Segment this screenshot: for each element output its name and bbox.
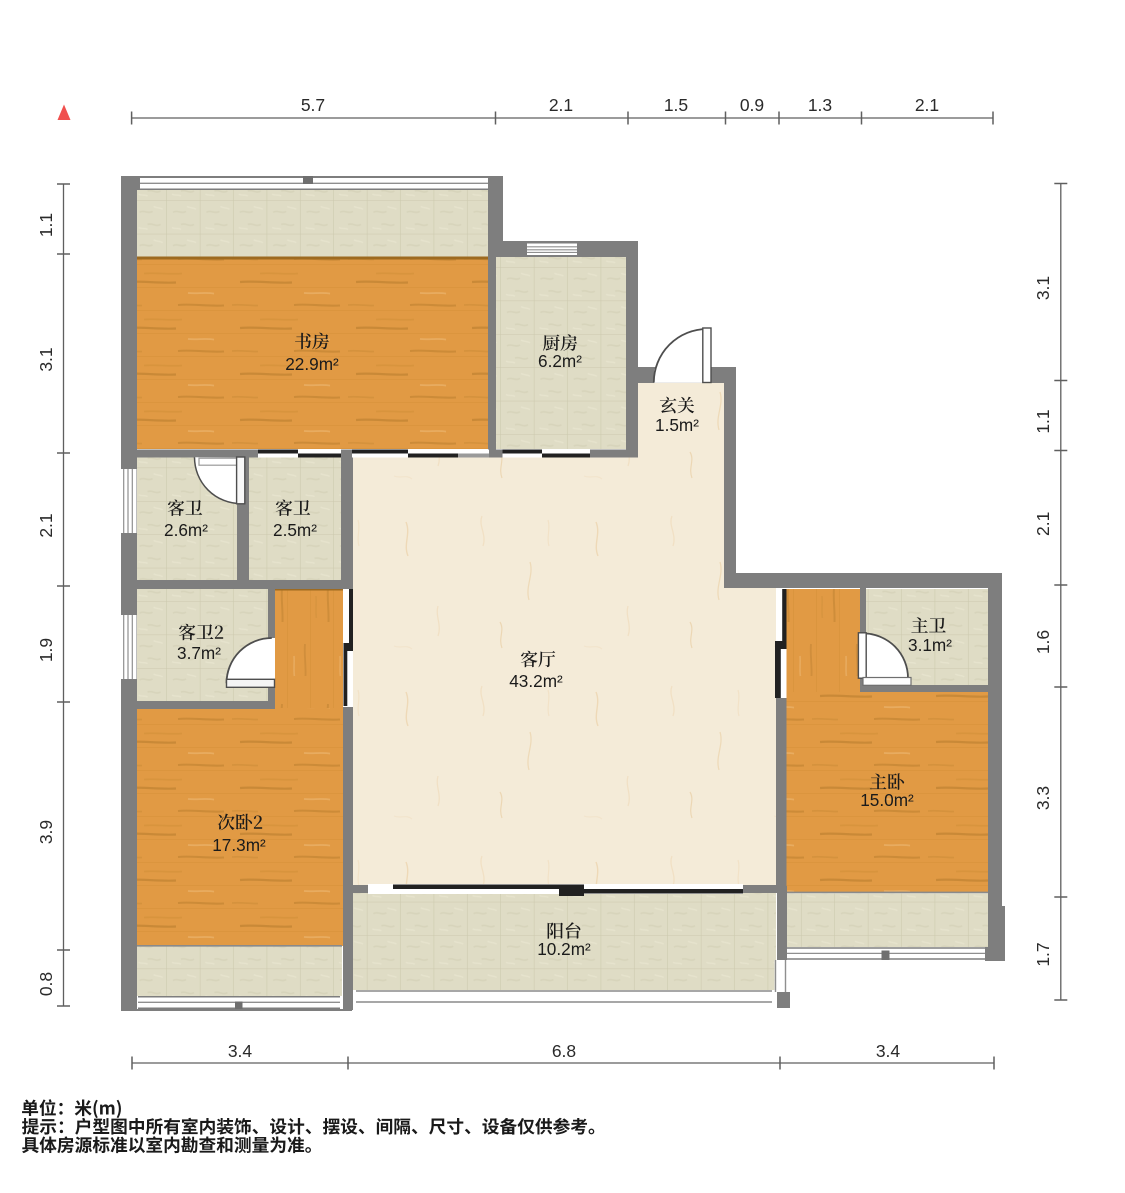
svg-text:43.2m²: 43.2m² [509, 671, 563, 691]
svg-text:1.9: 1.9 [36, 638, 56, 662]
svg-text:2.5m²: 2.5m² [273, 520, 317, 540]
svg-text:1.3: 1.3 [808, 95, 832, 115]
svg-text:6.2m²: 6.2m² [538, 351, 582, 371]
svg-text:1.7: 1.7 [1033, 942, 1053, 966]
svg-text:0.9: 0.9 [740, 95, 764, 115]
svg-text:3.4: 3.4 [876, 1041, 901, 1061]
svg-text:1.5: 1.5 [664, 95, 688, 115]
svg-text:3.9: 3.9 [36, 820, 56, 844]
svg-text:3.3: 3.3 [1033, 786, 1053, 810]
svg-text:2.1: 2.1 [1033, 512, 1053, 536]
svg-text:3.1m²: 3.1m² [908, 635, 952, 655]
svg-text:3.7m²: 3.7m² [177, 643, 221, 663]
svg-text:2.1: 2.1 [915, 95, 939, 115]
svg-text:2.1: 2.1 [549, 95, 573, 115]
svg-text:3.1: 3.1 [36, 347, 56, 371]
svg-text:22.9m²: 22.9m² [285, 354, 339, 374]
svg-text:5.7: 5.7 [301, 95, 325, 115]
svg-text:17.3m²: 17.3m² [212, 835, 266, 855]
svg-text:3.4: 3.4 [228, 1041, 253, 1061]
svg-text:2.6m²: 2.6m² [164, 520, 208, 540]
svg-text:3.1: 3.1 [1033, 276, 1053, 300]
svg-text:1.5m²: 1.5m² [655, 415, 699, 435]
svg-text:2.1: 2.1 [36, 513, 56, 537]
svg-text:15.0m²: 15.0m² [860, 790, 914, 810]
svg-text:1.1: 1.1 [36, 213, 56, 237]
svg-text:10.2m²: 10.2m² [537, 939, 591, 959]
svg-text:6.8: 6.8 [552, 1041, 576, 1061]
svg-text:1.6: 1.6 [1033, 630, 1053, 654]
svg-text:0.8: 0.8 [36, 972, 56, 996]
svg-text:1.1: 1.1 [1033, 409, 1053, 433]
